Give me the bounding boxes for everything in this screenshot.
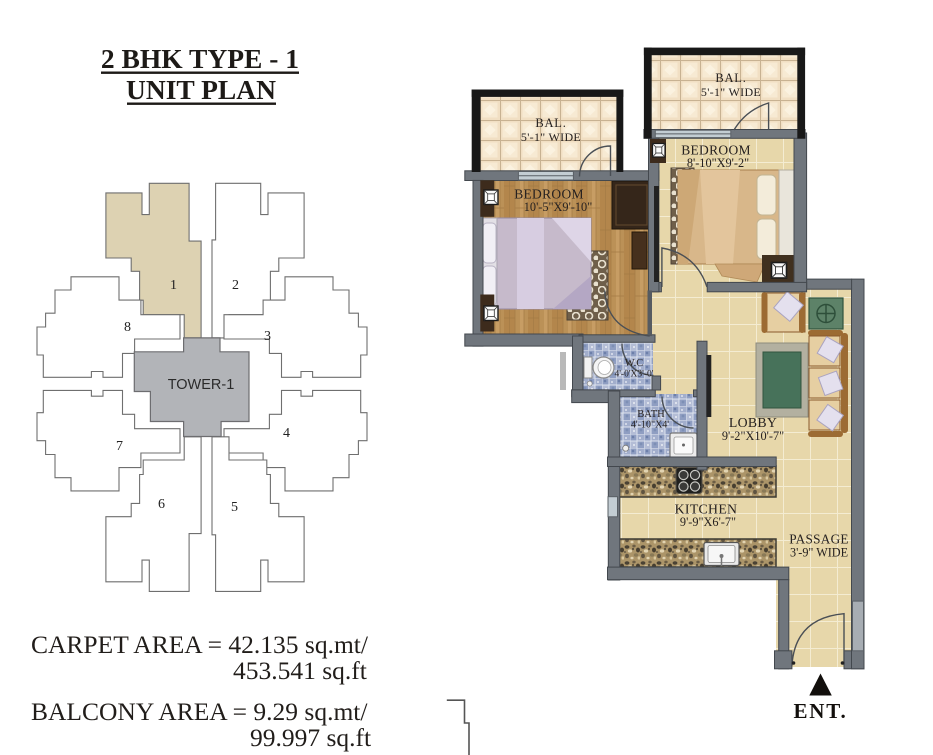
svg-text:BALCONY AREA = 9.29 sq.mt/: BALCONY AREA = 9.29 sq.mt/ — [31, 697, 368, 726]
svg-text:3'-9" WIDE: 3'-9" WIDE — [790, 546, 848, 560]
svg-text:ENT.: ENT. — [793, 699, 847, 723]
svg-text:2: 2 — [232, 278, 239, 293]
svg-text:5'-1" WIDE: 5'-1" WIDE — [521, 130, 581, 144]
svg-text:453.541 sq.ft: 453.541 sq.ft — [233, 656, 367, 685]
svg-text:9'-9"X6'-7": 9'-9"X6'-7" — [680, 515, 736, 529]
svg-text:BAL.: BAL. — [535, 116, 566, 130]
svg-text:10'-5"X9'-10": 10'-5"X9'-10" — [524, 200, 592, 214]
svg-text:4: 4 — [283, 426, 290, 441]
svg-text:BATH: BATH — [637, 409, 665, 420]
svg-text:2 BHK TYPE - 1: 2 BHK TYPE - 1 — [101, 43, 299, 74]
svg-text:7: 7 — [116, 439, 123, 454]
svg-text:5'-1" WIDE: 5'-1" WIDE — [701, 85, 761, 99]
svg-text:8'-10"X9'-2": 8'-10"X9'-2" — [687, 156, 749, 170]
svg-text:4'-0'X3'-0': 4'-0'X3'-0' — [614, 370, 653, 380]
svg-text:LOBBY: LOBBY — [729, 415, 777, 430]
svg-text:W.C: W.C — [625, 358, 644, 369]
svg-text:5: 5 — [231, 500, 238, 515]
svg-text:CARPET AREA = 42.135 sq.mt/: CARPET AREA = 42.135 sq.mt/ — [31, 630, 369, 659]
svg-text:4'-10"X4': 4'-10"X4' — [631, 420, 669, 431]
svg-text:99.997 sq.ft: 99.997 sq.ft — [250, 723, 371, 752]
svg-text:8: 8 — [124, 320, 131, 335]
svg-text:6: 6 — [158, 497, 165, 512]
svg-text:3: 3 — [264, 329, 271, 344]
svg-text:BAL.: BAL. — [715, 71, 746, 85]
svg-text:1: 1 — [170, 278, 177, 293]
svg-text:PASSAGE: PASSAGE — [789, 532, 849, 547]
svg-text:TOWER-1: TOWER-1 — [168, 377, 235, 393]
svg-text:9'-2"X10'-7": 9'-2"X10'-7" — [722, 429, 784, 443]
svg-text:UNIT PLAN: UNIT PLAN — [126, 74, 276, 105]
